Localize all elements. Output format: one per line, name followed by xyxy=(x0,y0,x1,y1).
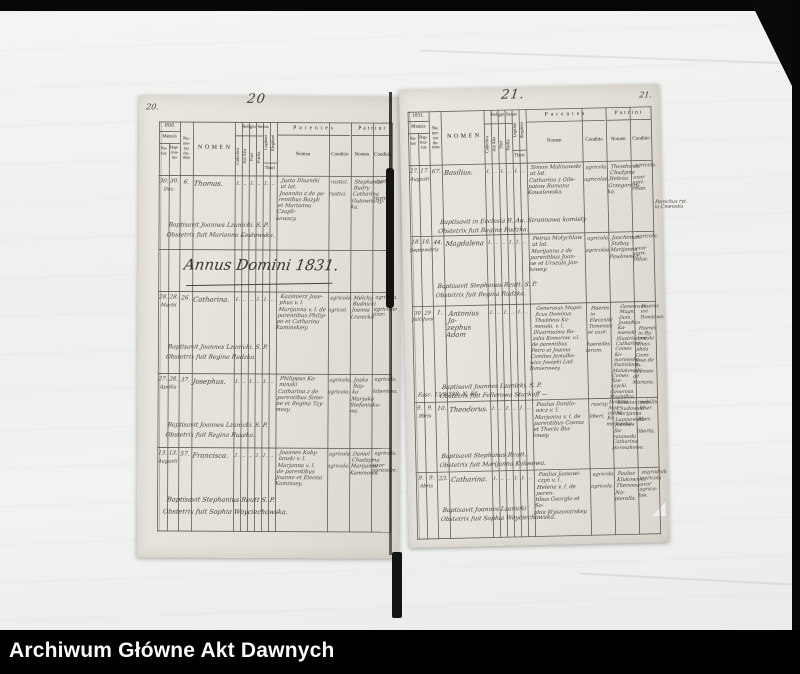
natus-day: 9. xyxy=(418,476,424,482)
thori-header: Thori xyxy=(263,166,277,171)
natus-day: 18. xyxy=(411,240,421,246)
entry-dates: 13. 13. xyxy=(157,450,179,456)
mark-illegitimi: ‥ xyxy=(525,405,533,411)
child-name: Josephus. xyxy=(192,379,234,386)
entry-month: Martii xyxy=(157,302,181,308)
baptisatus-header: Bap- tisa- tus xyxy=(169,145,180,160)
patrini-conditio: agricola. uxor agri- colae. xyxy=(633,234,657,264)
parents-conditio: rusczy. liberi. xyxy=(589,401,613,420)
baptisatus-day: 13. xyxy=(168,450,178,456)
house-number: 67. xyxy=(430,169,444,175)
parents-conditio: agricola. agricola. xyxy=(327,377,351,395)
entry-month: Septembris xyxy=(409,247,433,254)
child-name: Basilius. xyxy=(443,169,485,177)
thori-header: Thori xyxy=(512,153,526,158)
house-number: 26. xyxy=(179,296,193,302)
patrini-names: Daniel Chudzyma Marijanna Kaminowa. xyxy=(349,451,373,476)
mark-illegitimi: ‥ xyxy=(268,379,276,385)
archive-name-label: Archiwum Główne Akt Dawnych xyxy=(9,639,335,663)
tally-marks: 1. ‥ 1. ‥ 1. ‥ xyxy=(233,379,276,385)
tally-marks: 1. ‥ ‥ 1. 1. ‥ xyxy=(233,453,276,459)
house-number: 10. xyxy=(435,406,449,412)
tally-marks: 1. ‥ 1. ‥ 1. ‥ xyxy=(490,405,533,412)
patrini-conditio: nobilis liber. liber. liberta. xyxy=(636,400,661,435)
entry-dates: 9. 9. xyxy=(415,475,437,481)
baptisatus-day: 29 xyxy=(423,310,433,316)
margin-note: Parochus ryt. in Cmensku xyxy=(654,199,701,211)
entry-month: Augusti xyxy=(408,176,432,183)
patrini-names: Melchy Budnicki Joanna Lranicka. xyxy=(350,295,374,320)
page-corner-number: 21. xyxy=(639,90,653,99)
natus-day: 9. xyxy=(416,406,422,412)
child-name: Antonius Jo- zephus Adam xyxy=(446,310,490,339)
midwife-note: Obstetrix fuit Regina Ruszka. xyxy=(165,431,256,438)
baptisatus-day: 30. xyxy=(170,178,180,184)
register-page-left: 20. 20 xyxy=(137,95,401,558)
natus-day: 30 xyxy=(413,311,423,317)
parentes-conditio-header: Conditio xyxy=(329,152,351,158)
tally-marks: 1. ‥ ‥ 1. 1. ‥ xyxy=(491,475,534,482)
parents-names: Simon Malinowski ut lat. Catharina z Gil… xyxy=(527,164,585,197)
patrini-conditio: agricola. uxor agri- colae. xyxy=(631,163,655,193)
mark-illegitimi: ‥ xyxy=(268,453,276,459)
natus-header: Na- tus xyxy=(408,137,418,147)
parents-conditio: agricola. agricol. xyxy=(328,295,352,313)
year-header: 1831. xyxy=(408,113,429,119)
parents-names: Paulus Jassowi- czyn v. l. Helena v. l. … xyxy=(534,471,593,516)
parents-names: Philippus Ka- minski Catharina z de pare… xyxy=(275,376,331,414)
patrini-names: Joachimus Stabay Marijanna Pawlowska. xyxy=(609,235,634,260)
house-number: 23. xyxy=(436,476,450,482)
baptisatus-header: Bap- tisa- tus xyxy=(418,135,429,150)
page-number: 21. xyxy=(500,87,525,103)
entry-dates: 28. 28. xyxy=(158,294,180,300)
baptizer-note: Baptisavit Joannes Lzanicki. S. P. xyxy=(167,343,268,351)
entry-month: Augusti xyxy=(156,458,180,464)
entry-dates: 18. 18. xyxy=(410,239,432,245)
parents-names: Generosus Magni- ficus Dominus Thaddeus … xyxy=(529,305,591,372)
child-name: Magdalena xyxy=(445,240,487,248)
parents-conditio: Haeres in Eleczniki Tomensis et uxor. ha… xyxy=(586,305,614,354)
tally-marks: 1. ‥ 1. ‥ 1. ‥ xyxy=(488,309,531,316)
patrini-conditio-header: Conditio xyxy=(630,136,652,142)
nomen-header: NOMEN xyxy=(442,133,484,140)
entry-dates: 9. 9. xyxy=(414,405,436,411)
patrini-names: Paulus Klukowski Theressa Na- pieralla. xyxy=(614,471,640,503)
house-number: 44. xyxy=(431,240,445,246)
child-name: Francisca. xyxy=(192,453,234,460)
parentes-header: Parentes xyxy=(278,126,351,132)
baptizer-note: Baptisavit Stephanius Reutt S. P. xyxy=(167,495,276,504)
baptisatus-day: 9. xyxy=(429,475,435,481)
mark-illegitimi: ‥ xyxy=(521,239,529,245)
baptizer-note: Baptisavit Joannes Lzanicki. S. P. xyxy=(167,421,268,429)
patrini-names: Theodorus Chudyma Helena Grzegorczy- ka. xyxy=(607,164,633,196)
natus-day: 13. xyxy=(158,450,168,456)
register-table-left: 1830. Mensis Na- tus Bap- tisa- tus Nu- … xyxy=(157,121,393,532)
book-gutter-shadow xyxy=(386,168,394,308)
parentes-conditio-header: Conditio xyxy=(582,137,606,143)
baptisatus-day: 9. xyxy=(427,405,433,411)
mark-illegitimi: ‥ xyxy=(269,181,277,187)
parents-conditio: rustici. rustici. xyxy=(328,179,352,197)
midwife-note: Obstetrix fuit Regina Rudzka. xyxy=(165,353,256,360)
entry-dates: 27. 17. xyxy=(409,168,431,174)
tally-marks: 1. ‥ 1. ‥ 1. ‥ xyxy=(234,181,277,187)
page-corner-number: 20. xyxy=(145,102,159,111)
house-number: 37. xyxy=(178,378,192,384)
entry-month: 9bris xyxy=(413,413,437,420)
parentes-nomen-header: Nomen xyxy=(277,152,329,158)
register-table-right: 1831. Mensis Na- tus Bap- tisa- tus Nu- … xyxy=(407,106,661,539)
mark-illegitimi: ‥ xyxy=(520,168,528,174)
year-header: 1830. xyxy=(159,123,180,129)
parents-conditio: agricola. agricola. xyxy=(591,471,615,490)
parents-names: Paulus Danilo- wicz v. l. Marjanna v. l.… xyxy=(532,401,590,440)
parents-names: Justa Dluzniki ut lat. Joannita z de pa-… xyxy=(275,178,331,222)
patrini-header: Patrini xyxy=(607,110,652,117)
patrini-header: Patrini xyxy=(352,126,393,132)
patrini-nomen-header: Nomen xyxy=(606,137,630,143)
entry-dates: 30. 30. xyxy=(158,178,180,184)
tally-marks: 1. ‥ 1. ‥ 1. ‥ xyxy=(485,168,528,175)
midwife-note: Obstetrix fuit Sophia Woyciechowska. xyxy=(162,507,288,516)
parents-names: Petrus Motychlow ut lat. Marijanna z de … xyxy=(529,235,587,274)
annus-domini-heading: Annus Domini 1831. xyxy=(165,255,358,274)
baptizer-note: Baptisavit Joannes Lzanicki. S. P. xyxy=(168,221,269,229)
baptisatus-day: 28. xyxy=(169,376,179,382)
house-number: 57. xyxy=(178,452,192,458)
mensis-header: Mensis xyxy=(159,134,180,140)
parents-names: Kazimierz Joze- phus v. l. Marijanna v. … xyxy=(275,294,331,332)
page-number: 20 xyxy=(246,92,267,107)
baptisatus-month: Junii xyxy=(422,317,435,322)
mark-illegitimi: ‥ xyxy=(523,309,531,315)
mensis-header: Mensis xyxy=(408,124,429,130)
parents-conditio: agricola. agricolae. xyxy=(585,235,609,254)
natus-day: 28. xyxy=(159,294,169,300)
entry-month: 9bris xyxy=(415,483,439,490)
nomen-header: NOMEN xyxy=(193,145,235,152)
child-name: Catharina. xyxy=(450,476,492,484)
child-name: Thomas. xyxy=(193,181,235,188)
book-gutter-shadow xyxy=(389,305,392,555)
patrini-conditio: zagrodnik agricola uxor agrico- lae. xyxy=(638,470,662,500)
entry-month: Aprilis xyxy=(156,384,180,390)
book-gutter-shadow xyxy=(392,552,402,618)
entry-month: Dec. xyxy=(157,186,181,192)
patrini-nomen-header: Nomen xyxy=(351,152,373,158)
register-page-right: 21. 21. xyxy=(399,84,669,548)
entry-dates: 27. 28. xyxy=(157,376,179,382)
tally-marks: 1. ‥ ‥ 1. 1. ‥ xyxy=(234,297,277,303)
book-gutter-shadow xyxy=(389,92,392,172)
parents-names: Joannes Koby- lanski v. l. Marjanna v. l… xyxy=(275,450,331,488)
archive-footer-bar: Archiwum Główne Akt Dawnych xyxy=(0,630,800,674)
natus-day: 27. xyxy=(158,376,168,382)
natus-day: 30. xyxy=(159,178,169,184)
natus-day: 27. xyxy=(409,169,419,175)
baptisatus-day: 28. xyxy=(169,294,179,300)
patrini-names: Konstantinus Chudowski Marijanna Lapinow… xyxy=(612,401,640,452)
child-name: Catharina. xyxy=(193,297,235,304)
midwife-note: Obstetrix fuit Marianna Kostowska. xyxy=(166,231,275,239)
mark-illegitimi: ‥ xyxy=(526,475,534,481)
baptisatus-day: 18. xyxy=(421,239,431,245)
archive-scan-viewer: 20. 20 xyxy=(0,0,800,674)
parents-conditio: agricola. agricolae. xyxy=(584,164,608,183)
house-number: 1. xyxy=(433,310,447,316)
mark-illegitimi: ‥ xyxy=(269,297,277,303)
natus-header: Na- tus xyxy=(159,146,169,156)
baptisatus-day: 17. xyxy=(420,168,430,174)
parents-conditio: agricola. agricola. xyxy=(327,451,351,469)
house-number: 6. xyxy=(179,180,193,186)
numerus-domus-header: Nu- me- rus do- mus xyxy=(429,126,443,151)
tally-marks: 1. ‥ ‥ 1. 1. ‥ xyxy=(486,239,529,246)
child-name: Theodorus. xyxy=(449,406,491,414)
numerus-domus-header: Nu- me- rus do- mus xyxy=(180,137,193,161)
